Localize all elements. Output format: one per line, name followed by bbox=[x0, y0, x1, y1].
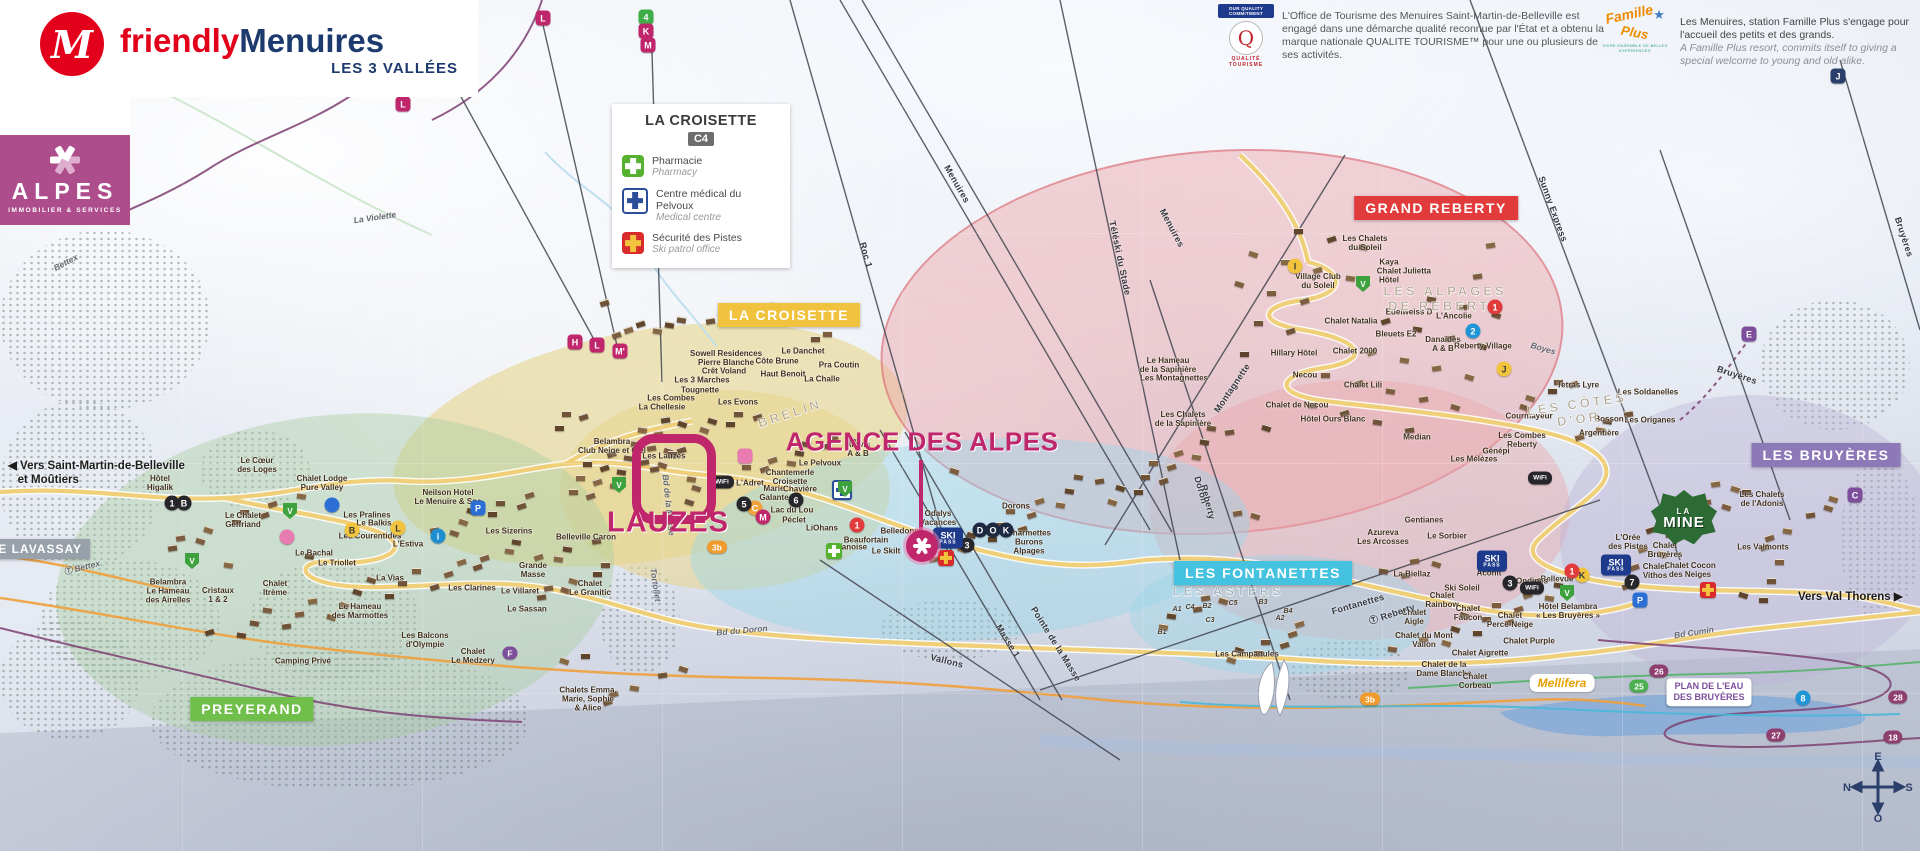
quality-commitment-badge: OUR QUALITY COMMITMENT bbox=[1218, 4, 1274, 18]
map-badge: J bbox=[1831, 69, 1846, 84]
place-label: Le Cœur des Loges bbox=[237, 457, 277, 475]
map-badge: 3b bbox=[707, 541, 727, 554]
map-badge: C bbox=[1848, 488, 1863, 503]
place-label: Chalet Le Granitic bbox=[569, 580, 611, 598]
lift-label: Vallons bbox=[929, 652, 964, 670]
place-label: Bleuets E2 bbox=[1376, 331, 1417, 340]
map-badge: I bbox=[1288, 259, 1303, 274]
lift-label: Pointe de la Masse bbox=[1029, 605, 1083, 683]
legend-label-en: Pharmacy bbox=[652, 167, 702, 179]
place-label: B3 bbox=[1259, 599, 1268, 607]
place-label: Les Chalets du Soleil bbox=[1343, 235, 1388, 253]
compass-top: E bbox=[1874, 752, 1881, 763]
place-label: C4 bbox=[1186, 604, 1195, 612]
place-label: Chalet Cocon des Neiges bbox=[1664, 562, 1716, 580]
lift-label: Masse 1 bbox=[994, 623, 1022, 660]
place-label: B2 bbox=[1203, 603, 1212, 611]
place-label: Les Soldanelles bbox=[1618, 389, 1678, 398]
place-label: Marie Galante bbox=[759, 485, 788, 503]
place-label: Les Montagnettes bbox=[1140, 375, 1208, 384]
place-label: Crêt Voland bbox=[702, 368, 746, 377]
place-label: Chalet Itrème bbox=[263, 580, 287, 598]
place-label: Beaufortain bbox=[844, 537, 888, 546]
place-label: Les Balcons d'Olympie bbox=[401, 632, 448, 650]
place-label: Belambra Le Hameau des Airelles bbox=[146, 579, 191, 606]
map-badge: 28 bbox=[1888, 691, 1907, 704]
map-badge: 26 bbox=[1649, 665, 1668, 678]
snowflake-icon bbox=[912, 536, 932, 556]
famille-plus-logo: Famille★Plus VIVRE ENSEMBLE DE BELLES EX… bbox=[1598, 6, 1672, 68]
place-label: Chalet Corbeau bbox=[1459, 673, 1491, 691]
place-label: Chalet Aigle bbox=[1402, 609, 1426, 627]
place-label: Camping Privé bbox=[275, 658, 331, 667]
alpes-name: ALPES bbox=[0, 178, 130, 205]
map-badge: K bbox=[999, 523, 1014, 538]
place-label: Chalet Lodge Pure Valley bbox=[297, 475, 348, 493]
place-label: Hillary Hôtel bbox=[1271, 350, 1318, 359]
place-label: Tougnette bbox=[681, 387, 719, 396]
place-label: Le Sorbier bbox=[1427, 533, 1467, 542]
map-badge: 5 bbox=[737, 497, 752, 512]
place-label: L'Ancolie bbox=[1436, 313, 1472, 322]
place-label: Chalet Vithos bbox=[1643, 563, 1667, 581]
place-label: C5 bbox=[1229, 600, 1238, 608]
place-label: Les Combes Reberty bbox=[1498, 432, 1546, 450]
legend-item-ski-patrol: Sécurité des Pistes Ski patrol office bbox=[622, 232, 780, 256]
qualite-tourisme-mark-icon: Q bbox=[1229, 21, 1263, 55]
place-label: Les Chalets de l'Adonis bbox=[1740, 491, 1785, 509]
place-label: A2 bbox=[1276, 615, 1285, 623]
place-label: Necou bbox=[1293, 372, 1317, 381]
place-label: Charmettes Burons Alpages bbox=[1007, 530, 1051, 557]
place-label: Les Combes bbox=[647, 395, 695, 404]
map-badge: 1 bbox=[850, 518, 865, 533]
famille-plus-text-fr: Les Menuires, station Famille Plus s'eng… bbox=[1680, 16, 1920, 42]
place-label: Pra Coutin bbox=[819, 362, 859, 371]
place-label: Génépi bbox=[1482, 448, 1509, 457]
map-badge: H bbox=[568, 335, 583, 350]
direction-west: ◀ Vers Saint-Martin-de-Belleville et Moû… bbox=[8, 459, 185, 488]
place-label: Les Campanules bbox=[1215, 651, 1279, 660]
brand-menuires: Menuires bbox=[239, 22, 384, 59]
area-banner: LES BRUYÈRES bbox=[1752, 443, 1901, 467]
place-label: Julietta bbox=[1403, 268, 1431, 277]
place-label: Chalet Aigrette bbox=[1452, 650, 1509, 659]
map-badge: WiFi bbox=[1528, 472, 1552, 485]
legend-item-medical: Centre médical du Pelvoux Medical centre bbox=[622, 188, 780, 224]
place-label: Village Club du Soleil bbox=[1295, 273, 1341, 291]
famille-plus-sub: VIVRE ENSEMBLE DE BELLES EXPÉRIENCES bbox=[1598, 43, 1672, 53]
place-label: Lac du Lou bbox=[771, 507, 814, 516]
place-label: Chalets Emma, Marie, Sophie & Alice bbox=[559, 687, 616, 714]
place-label: Les Origanes bbox=[1625, 417, 1676, 426]
place-label: Le Balkis bbox=[356, 520, 391, 529]
place-label: Reberty Village bbox=[1454, 343, 1512, 352]
famille-plus-word-b: Plus bbox=[1620, 23, 1650, 43]
place-label: Median bbox=[1403, 434, 1431, 443]
map-badge: L bbox=[396, 97, 411, 112]
map-badge bbox=[1700, 582, 1716, 598]
place-label: Les Pralines bbox=[343, 512, 390, 521]
legend-title: LA CROISETTE bbox=[622, 113, 780, 129]
alpes-snowflake-icon bbox=[48, 143, 82, 177]
area-banner: LE LAVASSAY bbox=[0, 539, 90, 559]
place-label: Chalet Perce-Neige bbox=[1487, 612, 1533, 630]
place-label: Les Sizerins bbox=[486, 528, 533, 537]
place-label: Hôtel Belambra « Les Bruyères » bbox=[1536, 603, 1600, 621]
map-badge: 3 bbox=[1503, 576, 1518, 591]
place-label: Côte Brune bbox=[755, 358, 798, 367]
map-badge: 4 bbox=[639, 10, 654, 25]
lift-label: Reberty bbox=[1199, 483, 1217, 520]
place-label: Bosson bbox=[1594, 416, 1623, 425]
place-label: Ski Soleil bbox=[1444, 585, 1480, 594]
compass-rose: E S O N bbox=[1843, 752, 1913, 822]
mellifera-sign: Mellifera bbox=[1530, 674, 1595, 692]
place-label: Chalet Natalia bbox=[1325, 318, 1378, 327]
legend-item-pharmacy: Pharmacie Pharmacy bbox=[622, 155, 780, 179]
place-label: Le Villaret bbox=[501, 588, 539, 597]
place-label: Chalet Lili bbox=[1344, 382, 1382, 391]
place-label: C3 bbox=[1206, 617, 1215, 625]
map-badge: i bbox=[431, 529, 446, 544]
place-label: Chalet 2000 bbox=[1333, 348, 1377, 357]
medical-cross-icon bbox=[622, 188, 648, 214]
famille-plus-text-en: A Famille Plus resort, commits itself to… bbox=[1680, 42, 1920, 68]
brand-wordmark: friendlyMenuires bbox=[120, 22, 384, 60]
road-label: Bd du Doron bbox=[716, 624, 768, 638]
legend-card: LA CROISETTE C4 Pharmacie Pharmacy Centr… bbox=[612, 104, 790, 268]
place-label: Chantemerle Croisette bbox=[766, 469, 814, 487]
qualite-tourisme-label: QUALITÉ TOURISME bbox=[1218, 56, 1274, 68]
lift-label: Bruyères bbox=[1716, 364, 1759, 386]
place-label: Kaya Chalet Hôtel bbox=[1377, 259, 1401, 286]
qualite-tourisme-logo: OUR QUALITY COMMITMENT Q QUALITÉ TOURISM… bbox=[1218, 4, 1274, 68]
map-badge: 1 bbox=[1565, 564, 1580, 579]
agence-des-alpes-label: AGENCE DES ALPES bbox=[786, 427, 1059, 458]
map-badge: P bbox=[471, 501, 486, 516]
lift-label: Bruyères bbox=[1893, 216, 1915, 259]
place-label: B1 bbox=[1158, 629, 1167, 637]
area-banner: LES FONTANETTES bbox=[1174, 561, 1352, 585]
alpes-subtitle: IMMOBILIER & SERVICES bbox=[0, 207, 130, 214]
area-label: LES CÔTES D'OR bbox=[1526, 391, 1630, 434]
place-label: Les Clarines bbox=[448, 585, 496, 594]
lift-label: Menuires bbox=[942, 163, 972, 204]
place-label: Chalet Faucon bbox=[1454, 605, 1482, 623]
legend-label-fr: Sécurité des Pistes bbox=[652, 232, 742, 244]
place-label: La Biellaz bbox=[1394, 571, 1431, 580]
area-label: LES ASTERS bbox=[1172, 585, 1283, 600]
place-label: L'Adret bbox=[736, 480, 764, 489]
lift-label: Montagnette bbox=[1212, 362, 1252, 415]
place-label: Chalet Rainbow bbox=[1425, 592, 1458, 610]
place-label: Le Hameau de la Sapinière bbox=[1140, 357, 1196, 375]
map-badge bbox=[280, 530, 295, 545]
road-label: Bd Cumin bbox=[1673, 625, 1714, 641]
place-label: Grande Masse bbox=[519, 562, 547, 580]
place-label: L'Estiva bbox=[393, 541, 423, 550]
lift-label: Doron bbox=[1192, 475, 1209, 505]
map-badge: B bbox=[177, 496, 192, 511]
area-banner: LA CROISETTE bbox=[718, 303, 860, 327]
place-label: L'Orée des Pistes bbox=[1608, 534, 1648, 552]
road-label: Tortollet bbox=[648, 568, 662, 603]
map-labels-layer: Sowell Residences Pierre BlancheCrêt Vol… bbox=[0, 0, 1920, 851]
place-label: A1 bbox=[1173, 606, 1182, 614]
map-badge: J bbox=[1497, 362, 1512, 377]
place-label: Azureva Les Arcosses bbox=[1357, 529, 1409, 547]
map-badge: F bbox=[502, 647, 517, 660]
lift-label: Menuires bbox=[1158, 207, 1187, 249]
place-label: Danaïdes A & B bbox=[1425, 336, 1461, 354]
lift-label: Sunny Express bbox=[1536, 175, 1569, 243]
brand-friendly: friendly bbox=[120, 22, 239, 59]
place-label: Le Triollet bbox=[318, 560, 356, 569]
legend-label-fr: Centre médical du Pelvoux bbox=[656, 188, 780, 212]
map-badge bbox=[826, 543, 842, 559]
place-label: Le Chalet Geffriand bbox=[225, 512, 261, 530]
place-label: Péclet bbox=[782, 517, 806, 526]
map-badge bbox=[325, 498, 340, 513]
map-badge: L bbox=[536, 11, 551, 26]
alpes-agency-badge: ALPES IMMOBILIER & SERVICES bbox=[0, 135, 130, 225]
famille-plus-star-icon: ★ bbox=[1653, 7, 1665, 22]
place-label: Le Skilt bbox=[872, 548, 900, 557]
map-badge: 18 bbox=[1883, 731, 1902, 744]
place-label: Odalys Vacances bbox=[920, 510, 956, 528]
place-label: Chalet Le Medzery bbox=[451, 648, 495, 666]
map-badge: B bbox=[345, 523, 360, 538]
place-label: Sowell Residences Pierre Blanche bbox=[690, 350, 762, 368]
place-label: Chalet Bruyères bbox=[1648, 542, 1683, 560]
map-badge: 3b bbox=[1360, 693, 1380, 706]
lift-label: Ⓣ Reberty bbox=[1368, 602, 1416, 626]
place-label: Le Danchet bbox=[781, 348, 824, 357]
place-label: Le Hameau des Marmottes bbox=[332, 603, 388, 621]
place-label: Chalet de la Dame Blanche bbox=[1416, 661, 1471, 679]
resort-map: Sowell Residences Pierre BlancheCrêt Vol… bbox=[0, 0, 1920, 851]
place-label: Les Chalets de la Sapinière bbox=[1155, 411, 1211, 429]
map-badge: L bbox=[391, 521, 406, 536]
place-label: La Chellesie bbox=[639, 404, 686, 413]
place-label: La Vias bbox=[376, 575, 404, 584]
map-badge: M' bbox=[613, 344, 628, 359]
map-badge bbox=[738, 449, 753, 464]
qualite-tourisme-text: L'Office de Tourisme des Menuires Saint-… bbox=[1282, 10, 1604, 63]
map-badge: 7 bbox=[1625, 575, 1640, 590]
map-badge: P bbox=[1633, 593, 1648, 608]
place-label: Dorons bbox=[1002, 503, 1030, 512]
place-label: Le Pelvoux bbox=[799, 460, 841, 469]
road-label: Bettex bbox=[52, 253, 79, 274]
legend-label-en: Ski patrol office bbox=[652, 244, 742, 256]
place-label: Haut Benoit bbox=[761, 371, 806, 380]
place-label: Courmayeur bbox=[1505, 413, 1552, 422]
place-label: Edelweiss D bbox=[1386, 309, 1433, 318]
map-badge: WiFi bbox=[1520, 582, 1544, 595]
place-label: Hôtel Ours Blanc bbox=[1301, 416, 1366, 425]
place-label: Chalet Purple bbox=[1503, 638, 1555, 647]
map-badge: 2 bbox=[1466, 324, 1481, 339]
map-badge: 8 bbox=[1796, 691, 1811, 706]
place-label: La Challe bbox=[804, 376, 840, 385]
road-label: Ⓣ Bettex bbox=[63, 559, 101, 577]
place-label: Les Valmonts bbox=[1737, 544, 1789, 553]
map-badge: 1 bbox=[1488, 300, 1503, 315]
agence-snowflake-marker bbox=[906, 530, 938, 562]
place-label: Les 3 Marches bbox=[674, 377, 729, 386]
place-label: Le Bachal bbox=[295, 550, 333, 559]
area-banner: PREYERAND bbox=[190, 697, 313, 721]
legend-label-fr: Pharmacie bbox=[652, 155, 702, 167]
compass-bottom: O bbox=[1874, 813, 1883, 822]
map-badge: 6 bbox=[789, 493, 804, 508]
map-badge: 25 bbox=[1629, 680, 1648, 693]
direction-east: Vers Val Thorens ▶ bbox=[1798, 590, 1903, 604]
place-label: LiOhans bbox=[806, 525, 838, 534]
la-mine-line2: MINE bbox=[1663, 516, 1705, 530]
lauzes-highlight-label: LAUZES bbox=[607, 507, 729, 540]
lift-label: Fontanettes bbox=[1331, 592, 1386, 617]
compass-right: S bbox=[1905, 782, 1912, 794]
road-label: La Violette bbox=[353, 210, 397, 225]
legend-label-en: Medical centre bbox=[656, 212, 780, 224]
menuires-logo-icon: M bbox=[40, 12, 104, 76]
pharmacy-cross-icon bbox=[622, 155, 644, 177]
legend-grid-code: C4 bbox=[688, 132, 714, 146]
place-label: B4 bbox=[1284, 608, 1293, 616]
map-badge: SKIPASS bbox=[1601, 555, 1631, 576]
road-label: Boyes bbox=[1529, 341, 1556, 357]
place-label: Tetras Lyre bbox=[1557, 382, 1599, 391]
map-badge: K bbox=[639, 24, 654, 39]
map-badge: M bbox=[756, 510, 771, 525]
place-label: Le Sassan bbox=[507, 606, 547, 615]
map-badge: 27 bbox=[1766, 729, 1785, 742]
compass-left: N bbox=[1843, 782, 1851, 794]
map-badge: M bbox=[641, 38, 656, 53]
place-label: Chalet du Mont Vallon bbox=[1395, 632, 1453, 650]
map-badge: SKIPASS bbox=[1477, 551, 1507, 572]
place-label: Chalet de Necou bbox=[1266, 402, 1329, 411]
place-label: Gentianes bbox=[1405, 517, 1444, 526]
famille-plus-text: Les Menuires, station Famille Plus s'eng… bbox=[1680, 16, 1920, 69]
map-badge bbox=[938, 550, 954, 566]
plan-de-leau-sign: PLAN DE L'EAU DES BRUYÈRES bbox=[1666, 678, 1751, 706]
place-label: Les Mélèzes bbox=[1451, 456, 1498, 465]
place-label: Argentière bbox=[1579, 430, 1619, 439]
brand-tagline: LES 3 VALLÉES bbox=[120, 60, 458, 77]
map-badge: L bbox=[590, 338, 605, 353]
area-banner: GRAND REBERTY bbox=[1354, 196, 1518, 220]
lift-label: Roc 1 bbox=[858, 241, 875, 269]
agence-pointer-line bbox=[919, 460, 923, 532]
lift-label: Téléski du Stade bbox=[1107, 220, 1133, 296]
map-badge: E bbox=[1742, 327, 1757, 342]
place-label: Les Evons bbox=[718, 399, 758, 408]
ski-patrol-cross-icon bbox=[622, 232, 644, 254]
place-label: Cristaux 1 & 2 bbox=[202, 587, 234, 605]
